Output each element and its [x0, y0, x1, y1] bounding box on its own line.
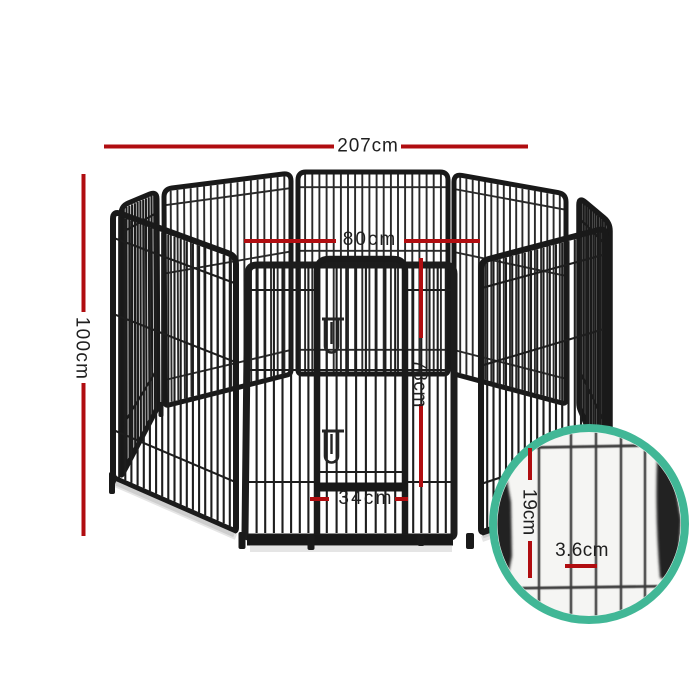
svg-text:78cm: 78cm: [409, 359, 430, 408]
svg-text:80cm: 80cm: [343, 229, 397, 250]
svg-text:34cm: 34cm: [338, 488, 393, 509]
svg-text:207cm: 207cm: [337, 136, 399, 157]
svg-text:19cm: 19cm: [519, 489, 540, 535]
svg-text:100cm: 100cm: [72, 317, 93, 381]
svg-text:3.6cm: 3.6cm: [555, 540, 609, 561]
